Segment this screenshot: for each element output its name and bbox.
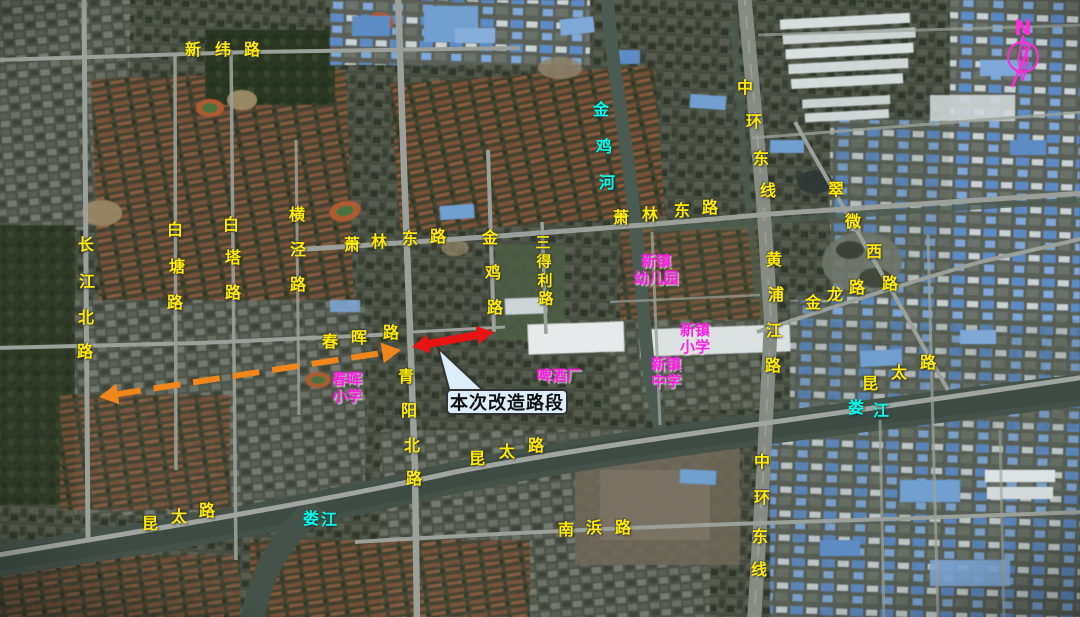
renovation-callout-pointer <box>438 348 486 393</box>
renovation-callout-text: 本次改造路段 <box>450 389 564 415</box>
renovation-callout: 本次改造路段 <box>446 389 568 415</box>
north-arrow: N <box>1008 16 1038 87</box>
renovation-segment-arrow <box>412 326 494 353</box>
annotations-layer: N <box>0 0 1080 617</box>
satellite-map: N 新纬路长江北路白塘路白塔路横泾路萧林东路萧林东路金鸡路三得利路春晖路青阳北路… <box>0 0 1080 617</box>
planned-extension-arrow <box>99 343 401 405</box>
